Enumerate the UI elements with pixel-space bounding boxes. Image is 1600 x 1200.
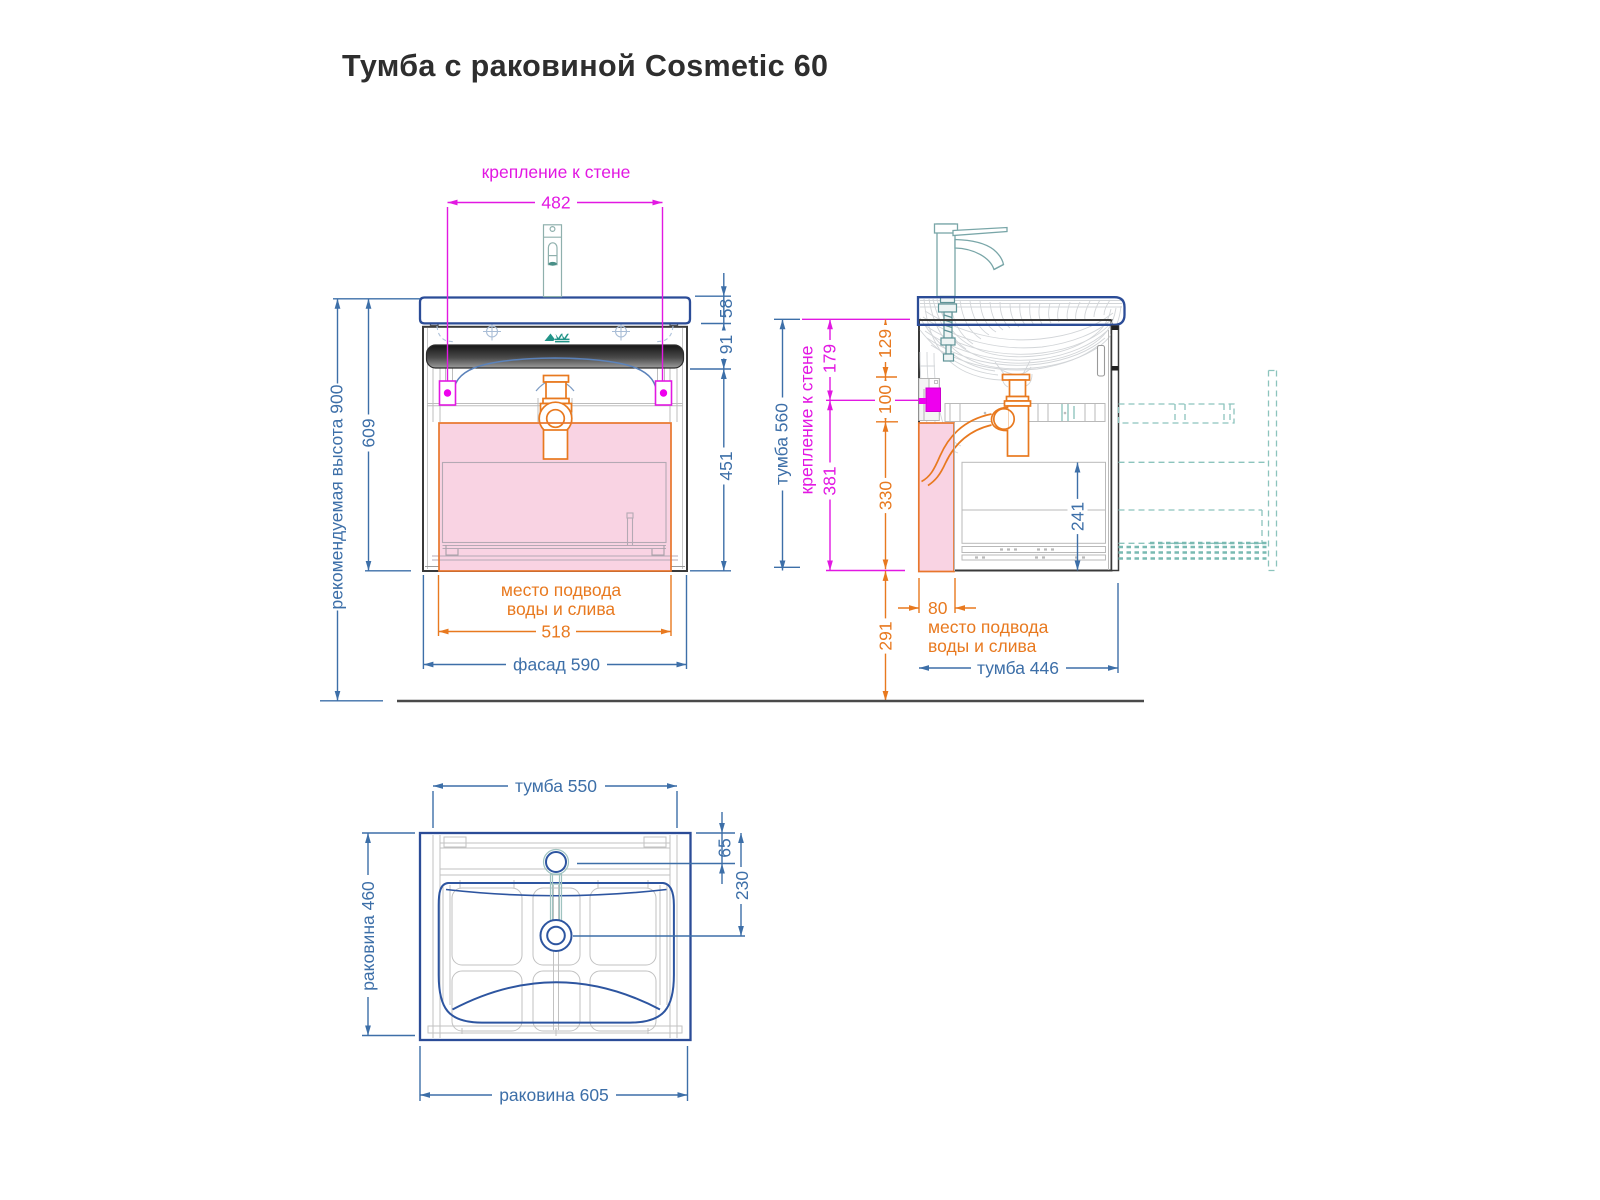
svg-text:раковина 460: раковина 460 — [358, 881, 378, 991]
svg-text:место подвода: место подвода — [501, 580, 622, 600]
svg-text:482: 482 — [541, 193, 570, 213]
svg-text:крепление к стене: крепление к стене — [797, 346, 817, 495]
svg-text:381: 381 — [820, 466, 840, 495]
svg-text:воды и слива: воды и слива — [928, 636, 1037, 656]
svg-text:65: 65 — [715, 838, 735, 857]
svg-text:609: 609 — [359, 418, 379, 447]
svg-text:тумба 550: тумба 550 — [515, 776, 597, 796]
svg-text:291: 291 — [876, 621, 896, 650]
svg-text:крепление к стене: крепление к стене — [482, 162, 631, 182]
svg-text:91: 91 — [716, 335, 736, 354]
svg-text:Тумба с раковиной Cosmetic 60: Тумба с раковиной Cosmetic 60 — [342, 49, 828, 83]
svg-text:раковина 605: раковина 605 — [499, 1085, 609, 1105]
svg-text:230: 230 — [732, 871, 752, 900]
svg-text:241: 241 — [1068, 502, 1088, 531]
svg-text:рекомендуемая высота 900: рекомендуемая высота 900 — [327, 384, 347, 609]
svg-text:80: 80 — [928, 598, 948, 618]
svg-text:воды и слива: воды и слива — [507, 599, 616, 619]
svg-text:тумба 560: тумба 560 — [772, 403, 792, 485]
svg-text:451: 451 — [716, 451, 736, 480]
svg-text:фасад 590: фасад 590 — [513, 655, 600, 675]
svg-text:место подвода: место подвода — [928, 617, 1049, 637]
svg-text:330: 330 — [876, 481, 896, 510]
svg-text:518: 518 — [541, 622, 570, 642]
svg-text:58: 58 — [716, 299, 736, 318]
svg-text:179: 179 — [820, 344, 840, 373]
svg-text:129: 129 — [875, 329, 895, 358]
svg-text:100: 100 — [875, 385, 895, 414]
svg-text:тумба 446: тумба 446 — [977, 658, 1059, 678]
